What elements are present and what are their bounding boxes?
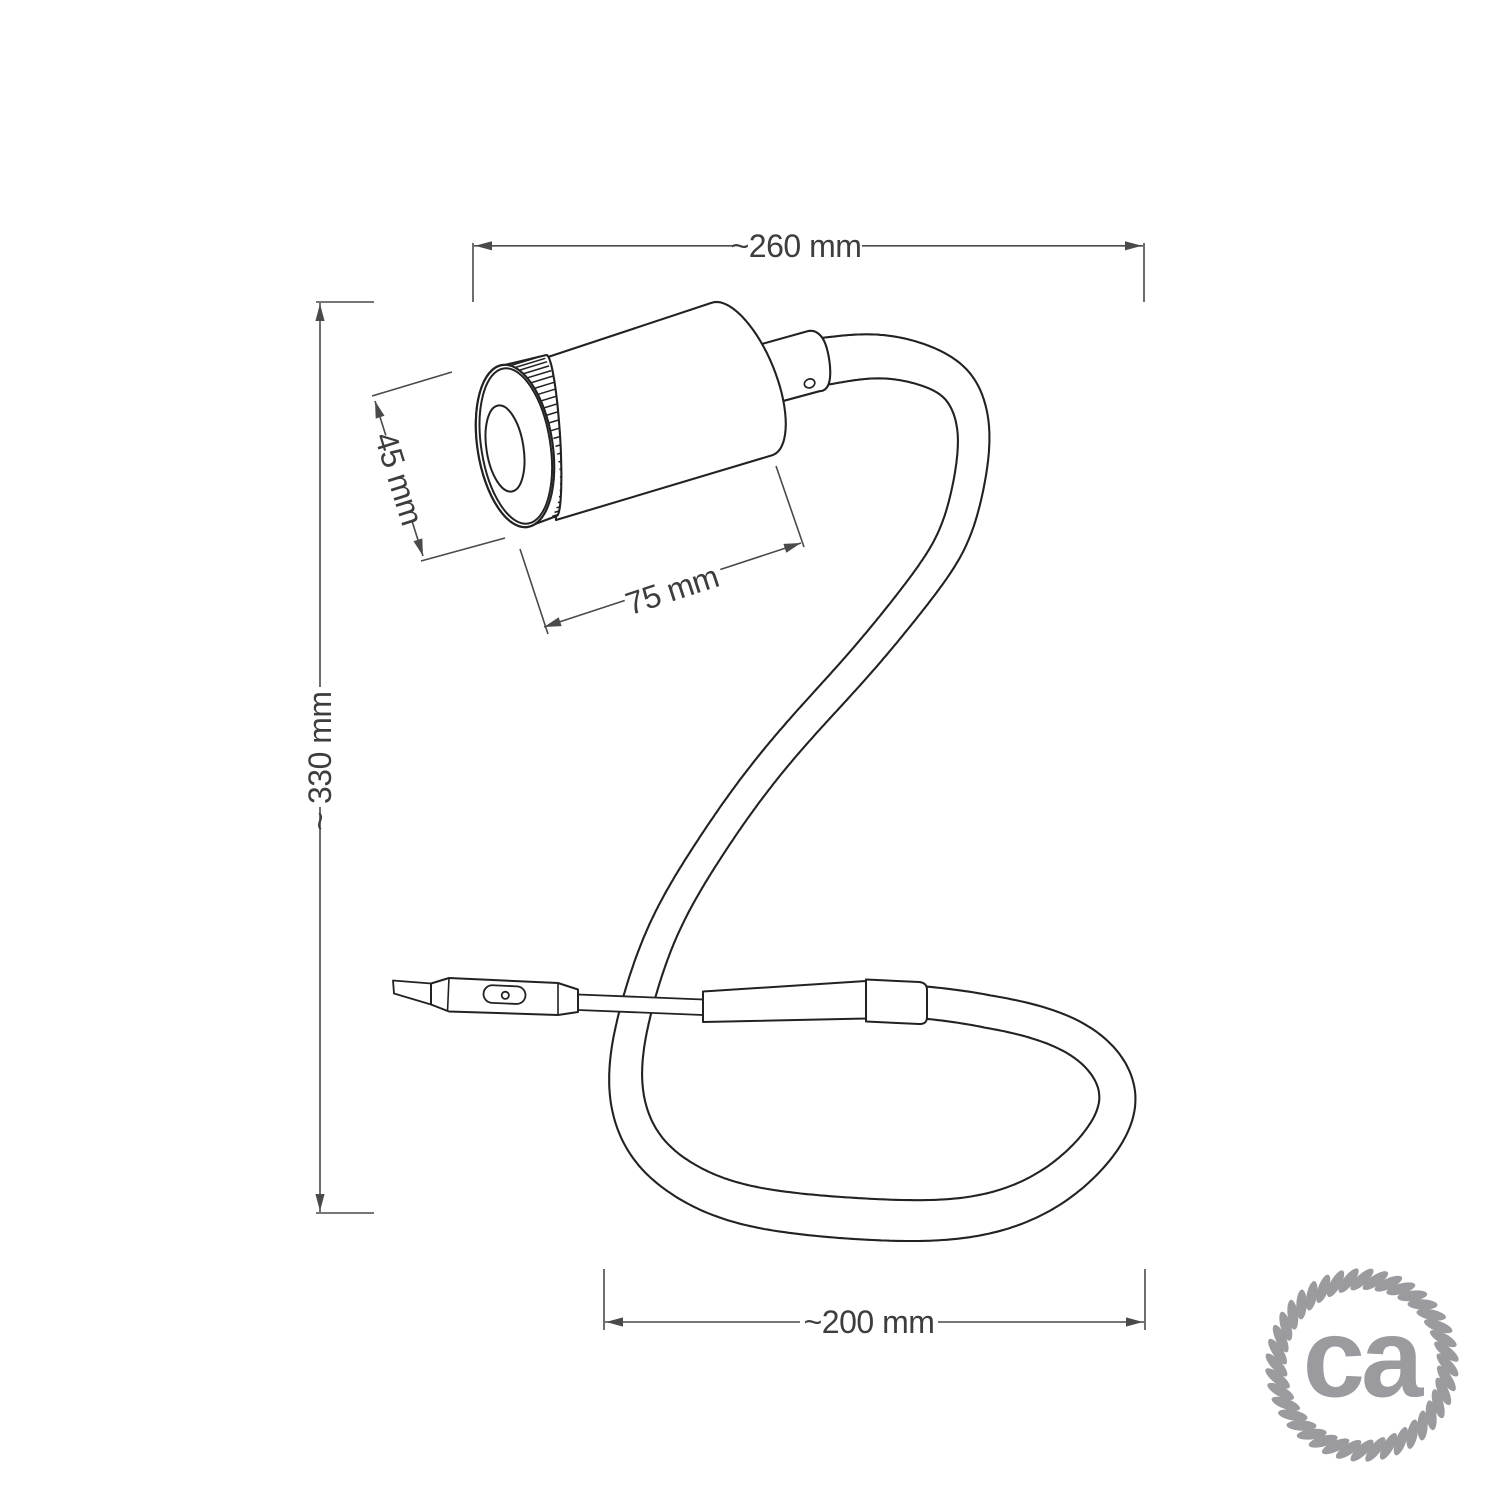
svg-text:~ 330 mm: ~ 330 mm <box>302 691 338 830</box>
svg-text:~260 mm: ~260 mm <box>731 228 862 264</box>
svg-text:~200 mm: ~200 mm <box>804 1304 935 1340</box>
svg-text:ca: ca <box>1303 1296 1424 1421</box>
